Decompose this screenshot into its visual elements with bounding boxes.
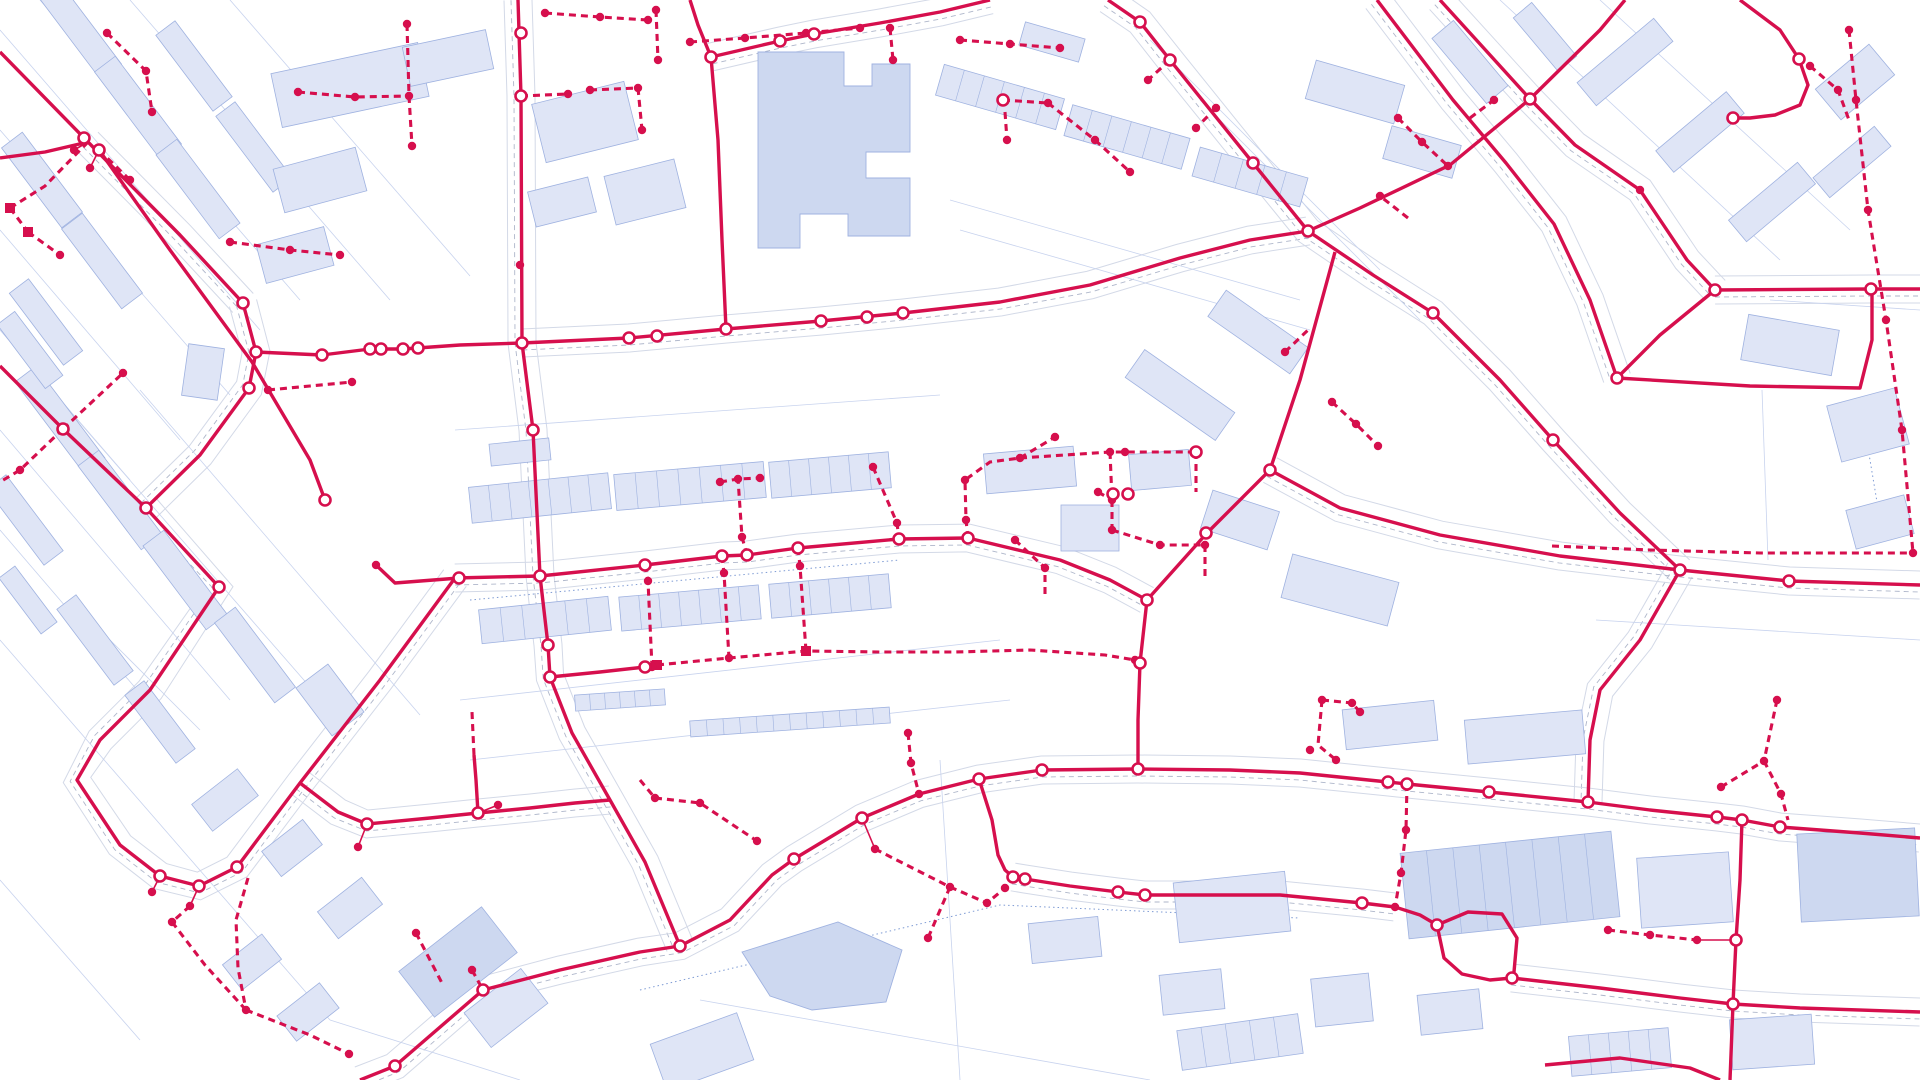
junction-node[interactable] (516, 91, 527, 102)
junction-node[interactable] (1675, 565, 1686, 576)
junction-node[interactable] (362, 819, 373, 830)
service-point-dot[interactable] (1490, 96, 1498, 104)
service-point-dot[interactable] (348, 378, 356, 386)
road-edge (136, 307, 242, 498)
service-connection-line[interactable] (236, 878, 248, 1010)
junction-node[interactable] (1142, 595, 1153, 606)
junction-node[interactable] (1383, 777, 1394, 788)
junction-node[interactable] (1037, 765, 1048, 776)
service-point-dot[interactable] (1376, 192, 1384, 200)
service-point-dot[interactable] (1604, 926, 1612, 934)
service-point-dot[interactable] (405, 92, 413, 100)
junction-node[interactable] (517, 338, 528, 349)
service-connection-line[interactable] (1764, 700, 1777, 761)
service-point-dot[interactable] (893, 519, 901, 527)
building-footprint (262, 819, 323, 876)
junction-node[interactable] (543, 640, 554, 651)
service-point-dot[interactable] (103, 29, 111, 37)
service-point-dot[interactable] (1391, 903, 1399, 911)
junction-node[interactable] (58, 424, 69, 435)
junction-node[interactable] (1775, 822, 1786, 833)
service-point-dot[interactable] (956, 36, 964, 44)
network-main-line[interactable] (1512, 978, 1920, 1012)
service-point-dot[interactable] (242, 1006, 250, 1014)
service-point-dot[interactable] (403, 20, 411, 28)
service-point-dot[interactable] (1011, 536, 1019, 544)
service-point-dot[interactable] (336, 251, 344, 259)
junction-node[interactable] (789, 854, 800, 865)
service-point-dot[interactable] (654, 56, 662, 64)
service-point-dot[interactable] (126, 176, 134, 184)
service-point-dot[interactable] (1852, 96, 1860, 104)
road-edge (523, 245, 1310, 357)
service-point-dot[interactable] (1864, 206, 1872, 214)
junction-node[interactable] (1428, 308, 1439, 319)
service-point-dot[interactable] (264, 386, 272, 394)
junction-node[interactable] (793, 543, 804, 554)
network-main-line[interactable] (1715, 289, 1920, 290)
road-edge (1715, 275, 1920, 276)
junction-node[interactable] (238, 298, 249, 309)
network-main-line[interactable] (1680, 570, 1920, 585)
parcel-layer (0, 0, 1920, 1080)
service-connection-line[interactable] (655, 798, 757, 841)
junction-node[interactable] (1357, 898, 1368, 909)
service-point-dot[interactable] (904, 729, 912, 737)
service-point-dot[interactable] (1693, 936, 1701, 944)
junction-node[interactable] (998, 95, 1009, 106)
network-main-line[interactable] (1617, 290, 1715, 378)
network-main-line[interactable] (1377, 0, 1617, 378)
service-connection-line[interactable] (521, 94, 568, 96)
map-canvas[interactable] (0, 0, 1920, 1080)
service-point-dot[interactable] (1845, 26, 1853, 34)
junction-node[interactable] (640, 662, 651, 673)
junction-node[interactable] (1108, 489, 1119, 500)
network-main-line[interactable] (146, 303, 256, 508)
junction-node[interactable] (454, 573, 465, 584)
service-point-dot[interactable] (1397, 869, 1405, 877)
service-point-dot[interactable] (1144, 76, 1152, 84)
service-point-dot[interactable] (516, 261, 524, 269)
service-point-dot[interactable] (1006, 40, 1014, 48)
junction-node[interactable] (94, 145, 105, 156)
junction-node[interactable] (1731, 935, 1742, 946)
junction-node[interactable] (1135, 658, 1146, 669)
service-point-dot[interactable] (1281, 348, 1289, 356)
junction-node[interactable] (1165, 55, 1176, 66)
service-point-dot[interactable] (741, 34, 749, 42)
service-point-dot[interactable] (886, 24, 894, 32)
junction-node[interactable] (214, 582, 225, 593)
building-footprint (95, 56, 182, 159)
network-main-line[interactable] (550, 667, 645, 677)
building-footprint (222, 934, 281, 990)
service-point-dot[interactable] (1806, 62, 1814, 70)
road-centerline (363, 776, 1920, 1080)
building-footprint (273, 147, 367, 212)
service-connection-line[interactable] (875, 849, 1005, 903)
service-point-dot[interactable] (738, 533, 746, 541)
junction-node[interactable] (1525, 94, 1536, 105)
junction-node[interactable] (251, 347, 262, 358)
service-point-dot[interactable] (1402, 826, 1410, 834)
service-point-dot[interactable] (1016, 454, 1024, 462)
parcel-line (1200, 100, 1420, 320)
service-point-dot[interactable] (1394, 114, 1402, 122)
network-main-line[interactable] (300, 783, 610, 824)
road-centerline (1371, 4, 1610, 380)
service-point-dot[interactable] (1777, 790, 1785, 798)
service-point-dot[interactable] (56, 251, 64, 259)
road-edge (365, 783, 1919, 1080)
junction-node[interactable] (1794, 54, 1805, 65)
junction-node[interactable] (398, 344, 409, 355)
junction-node[interactable] (1201, 528, 1212, 539)
junction-node[interactable] (721, 324, 732, 335)
junction-node[interactable] (320, 495, 331, 506)
service-point-dot[interactable] (408, 142, 416, 150)
network-main-line[interactable] (711, 0, 990, 57)
junction-node[interactable] (390, 1061, 401, 1072)
service-connection-line[interactable] (1380, 196, 1408, 218)
junction-node[interactable] (545, 672, 556, 683)
building-footprint (0, 566, 57, 634)
service-connection-line[interactable] (1764, 761, 1788, 820)
building-footprint (62, 213, 143, 309)
service-point-dot[interactable] (286, 246, 294, 254)
service-point-dot[interactable] (1760, 757, 1768, 765)
service-connection-line[interactable] (1849, 30, 1913, 553)
service-point-dot[interactable] (1201, 541, 1209, 549)
service-point-dot[interactable] (1332, 756, 1340, 764)
service-point-dot[interactable] (16, 466, 24, 474)
service-point-dot[interactable] (961, 476, 969, 484)
building-footprint (1797, 828, 1919, 922)
junction-node[interactable] (652, 331, 663, 342)
service-connection-line[interactable] (472, 712, 474, 755)
service-point-dot[interactable] (294, 88, 302, 96)
service-point-dot[interactable] (1898, 426, 1906, 434)
service-point-dot[interactable] (871, 845, 879, 853)
service-point-dot[interactable] (186, 902, 194, 910)
junction-node[interactable] (1303, 226, 1314, 237)
junction-node[interactable] (535, 571, 546, 582)
building-footprint (156, 21, 232, 111)
junction-node[interactable] (1866, 284, 1877, 295)
junction-node[interactable] (1612, 373, 1623, 384)
junction-node[interactable] (1712, 812, 1723, 823)
service-point-dot[interactable] (1094, 488, 1102, 496)
building-footprint (1656, 92, 1744, 173)
road-edge (1514, 964, 1920, 998)
building-footprint (489, 438, 551, 466)
parcel-line (0, 880, 140, 1040)
junction-node[interactable] (1432, 920, 1443, 931)
junction-node[interactable] (365, 344, 376, 355)
service-point-dot[interactable] (70, 146, 78, 154)
service-point-dot[interactable] (596, 13, 604, 21)
junction-node[interactable] (1113, 887, 1124, 898)
junction-node[interactable] (528, 425, 539, 436)
junction-node[interactable] (1728, 113, 1739, 124)
junction-node[interactable] (1140, 890, 1151, 901)
building-footprint (1383, 126, 1462, 179)
service-point-dot[interactable] (468, 966, 476, 974)
service-point-dot[interactable] (856, 24, 864, 32)
building-footprint (769, 452, 892, 498)
junction-node[interactable] (1191, 447, 1202, 458)
service-point-dot[interactable] (1356, 708, 1364, 716)
building-footprint-complex (758, 52, 910, 248)
service-point-dot[interactable] (962, 516, 970, 524)
network-main-line[interactable] (1138, 600, 1147, 769)
junction-node[interactable] (857, 813, 868, 824)
junction-node[interactable] (862, 312, 873, 323)
building-footprint (1159, 969, 1225, 1015)
network-main-line[interactable] (376, 565, 459, 583)
service-point-dot[interactable] (1121, 448, 1129, 456)
junction-node[interactable] (1133, 764, 1144, 775)
junction-node[interactable] (1123, 489, 1134, 500)
service-point-dot[interactable] (351, 93, 359, 101)
service-point-dot[interactable] (915, 790, 923, 798)
junction-node[interactable] (1248, 158, 1259, 169)
service-point-dot[interactable] (586, 86, 594, 94)
service-point-dot[interactable] (1646, 931, 1654, 939)
junction-node[interactable] (79, 133, 90, 144)
service-point-dot[interactable] (1001, 884, 1009, 892)
network-main-line[interactable] (690, 0, 711, 57)
network-main-line[interactable] (0, 52, 88, 142)
service-point-dot[interactable] (1051, 433, 1059, 441)
junction-node[interactable] (898, 308, 909, 319)
service-point-dot[interactable] (354, 843, 362, 851)
fitting-square[interactable] (5, 203, 15, 213)
service-point-dot[interactable] (1773, 696, 1781, 704)
building-footprint (1208, 290, 1308, 374)
service-connection-line[interactable] (928, 887, 950, 938)
service-point-dot[interactable] (86, 164, 94, 172)
service-point-dot[interactable] (226, 238, 234, 246)
junction-node[interactable] (1728, 999, 1739, 1010)
junction-node[interactable] (516, 28, 527, 39)
service-point-dot[interactable] (494, 801, 502, 809)
service-connection-line[interactable] (63, 373, 123, 429)
service-connection-line[interactable] (1318, 700, 1336, 760)
parcel-line (1770, 300, 1920, 310)
road-edge (1679, 584, 1920, 599)
junction-node[interactable] (624, 333, 635, 344)
junction-node[interactable] (894, 534, 905, 545)
building-footprint (1729, 1014, 1814, 1070)
network-main-line[interactable] (711, 57, 726, 329)
building-footprint (1846, 495, 1914, 549)
junction-node[interactable] (1265, 465, 1276, 476)
service-point-dot[interactable] (119, 369, 127, 377)
service-connection-line[interactable] (0, 429, 63, 482)
service-connection-line[interactable] (1322, 700, 1352, 703)
service-point-dot[interactable] (753, 837, 761, 845)
junction-node[interactable] (1507, 973, 1518, 984)
service-point-dot[interactable] (1352, 420, 1360, 428)
service-point-dot[interactable] (1882, 316, 1890, 324)
service-point-dot[interactable] (1318, 696, 1326, 704)
junction-node[interactable] (1784, 576, 1795, 587)
building-footprint (1305, 60, 1404, 124)
service-point-dot[interactable] (1056, 44, 1064, 52)
service-point-dot[interactable] (796, 562, 804, 570)
service-point-dot[interactable] (1126, 168, 1134, 176)
service-point-dot[interactable] (1192, 124, 1200, 132)
service-point-dot[interactable] (1444, 162, 1452, 170)
service-point-dot[interactable] (634, 84, 642, 92)
service-point-dot[interactable] (1636, 186, 1644, 194)
service-point-dot[interactable] (1418, 138, 1426, 146)
junction-node[interactable] (1484, 787, 1495, 798)
building-footprint (1173, 871, 1291, 942)
service-point-dot[interactable] (1909, 549, 1917, 557)
service-connection-line[interactable] (890, 28, 893, 60)
service-point-dot[interactable] (644, 577, 652, 585)
utility-network-map[interactable] (0, 0, 1920, 1080)
service-point-dot[interactable] (1044, 99, 1052, 107)
junction-node[interactable] (1583, 797, 1594, 808)
service-point-dot[interactable] (142, 67, 150, 75)
building-footprint (1281, 554, 1399, 626)
service-point-dot[interactable] (372, 561, 380, 569)
service-connection-line[interactable] (1005, 112, 1007, 140)
service-point-dot[interactable] (564, 90, 572, 98)
service-point-dot[interactable] (983, 899, 991, 907)
building-footprint (769, 574, 892, 618)
service-point-dot[interactable] (644, 16, 652, 24)
service-point-dot[interactable] (168, 918, 176, 926)
service-point-dot[interactable] (696, 799, 704, 807)
service-point-dot[interactable] (1041, 564, 1049, 572)
junction-node[interactable] (155, 871, 166, 882)
junction-node[interactable] (717, 551, 728, 562)
road-centerline (296, 789, 611, 831)
junction-node[interactable] (194, 881, 205, 892)
service-point-dot[interactable] (1306, 746, 1314, 754)
service-connection-line[interactable] (1721, 761, 1764, 787)
service-point-dot[interactable] (1108, 526, 1116, 534)
service-point-dot[interactable] (412, 929, 420, 937)
network-main-line[interactable] (256, 343, 522, 355)
service-point-dot[interactable] (946, 883, 954, 891)
junction-node[interactable] (1008, 872, 1019, 883)
service-point-dot[interactable] (148, 108, 156, 116)
junction-node[interactable] (775, 36, 786, 47)
service-point-dot[interactable] (924, 934, 932, 942)
junction-node[interactable] (1737, 815, 1748, 826)
service-point-dot[interactable] (1091, 136, 1099, 144)
junction-node[interactable] (1020, 874, 1031, 885)
mains-layer[interactable] (0, 0, 1920, 1080)
parcel-line (700, 1000, 1150, 1080)
fitting-square[interactable] (801, 646, 811, 656)
service-point-dot[interactable] (1834, 86, 1842, 94)
junction-node[interactable] (473, 808, 484, 819)
junction-node[interactable] (706, 52, 717, 63)
junction-node[interactable] (1548, 435, 1559, 446)
network-main-line[interactable] (474, 755, 478, 813)
junction-node[interactable] (809, 29, 820, 40)
junction-node[interactable] (232, 862, 243, 873)
building-footprint (317, 877, 382, 938)
service-point-dot[interactable] (720, 569, 728, 577)
fitting-square[interactable] (23, 227, 33, 237)
junction-node[interactable] (640, 560, 651, 571)
junction-node[interactable] (675, 941, 686, 952)
junction-node[interactable] (742, 550, 753, 561)
building-footprint (1129, 449, 1192, 490)
junction-node[interactable] (963, 533, 974, 544)
service-connection-line[interactable] (268, 382, 352, 390)
junction-node[interactable] (141, 503, 152, 514)
building-footprint (1729, 162, 1816, 241)
service-point-dot[interactable] (541, 9, 549, 17)
service-point-dot[interactable] (734, 475, 742, 483)
service-point-dot[interactable] (652, 6, 660, 14)
service-point-dot[interactable] (1156, 541, 1164, 549)
service-point-dot[interactable] (1328, 398, 1336, 406)
junction-node[interactable] (1135, 17, 1146, 28)
building-footprint (1019, 22, 1085, 62)
junction-node[interactable] (317, 350, 328, 361)
service-point-dot[interactable] (1106, 448, 1114, 456)
service-point-dot[interactable] (345, 1050, 353, 1058)
building-footprint (614, 462, 767, 511)
building-footprint (1741, 314, 1840, 375)
junction-node[interactable] (1402, 779, 1413, 790)
service-point-dot[interactable] (1003, 136, 1011, 144)
service-point-dot[interactable] (686, 38, 694, 46)
junction-node[interactable] (816, 316, 827, 327)
service-point-dot[interactable] (869, 463, 877, 471)
network-main-line[interactable] (979, 779, 1013, 877)
service-point-dot[interactable] (725, 654, 733, 662)
junction-node[interactable] (413, 343, 424, 354)
service-point-dot[interactable] (638, 126, 646, 134)
service-point-dot[interactable] (716, 478, 724, 486)
service-connection-line[interactable] (656, 10, 658, 60)
building-footprint (1464, 710, 1585, 764)
building-footprint (125, 681, 195, 763)
building-footprint (277, 983, 339, 1041)
service-point-dot[interactable] (651, 794, 659, 802)
building-footprint-complex (742, 922, 902, 1010)
road-edge (156, 299, 270, 518)
service-point-dot[interactable] (756, 474, 764, 482)
junction-node[interactable] (244, 383, 255, 394)
network-main-line[interactable] (1588, 570, 1680, 802)
service-point-dot[interactable] (1717, 783, 1725, 791)
parcel-line (1762, 390, 1768, 560)
service-point-dot[interactable] (907, 759, 915, 767)
service-point-dot[interactable] (148, 888, 156, 896)
junction-node[interactable] (1710, 285, 1721, 296)
service-point-dot[interactable] (889, 56, 897, 64)
junction-node[interactable] (478, 985, 489, 996)
service-point-dot[interactable] (1348, 699, 1356, 707)
service-point-dot[interactable] (1212, 104, 1220, 112)
service-point-dot[interactable] (1374, 442, 1382, 450)
building-layer (0, 0, 1919, 1080)
junction-node[interactable] (974, 774, 985, 785)
junction-node[interactable] (376, 344, 387, 355)
